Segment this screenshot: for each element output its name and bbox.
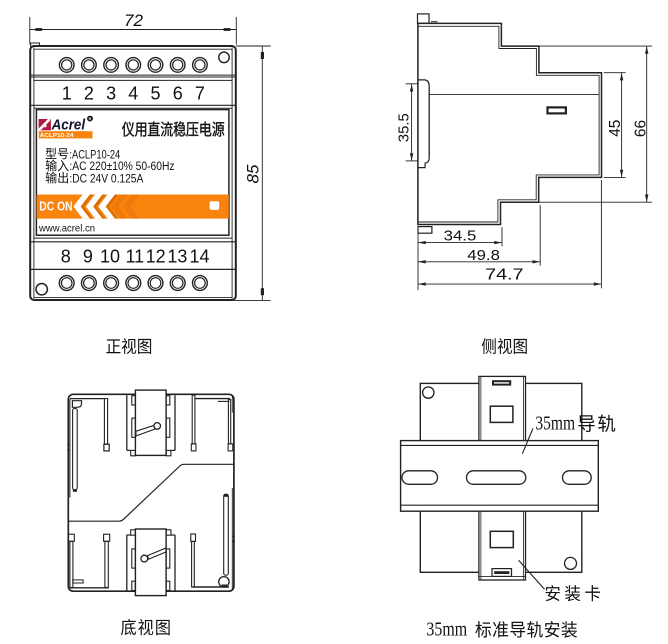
svg-text:R: R xyxy=(88,116,91,121)
svg-text:35mm: 35mm xyxy=(535,413,575,435)
svg-text:11: 11 xyxy=(125,246,144,266)
svg-text:8: 8 xyxy=(61,246,71,266)
svg-text:13: 13 xyxy=(167,246,187,266)
svg-text:www.acrel.cn: www.acrel.cn xyxy=(38,223,95,234)
svg-text:7: 7 xyxy=(195,83,205,103)
svg-text:9: 9 xyxy=(83,246,93,266)
svg-text:72: 72 xyxy=(124,11,143,30)
svg-text:74.7: 74.7 xyxy=(485,266,523,283)
svg-text:35.5: 35.5 xyxy=(395,113,412,142)
svg-text:45: 45 xyxy=(607,120,624,137)
svg-text:DC ON: DC ON xyxy=(39,198,72,213)
svg-text:3: 3 xyxy=(106,83,116,103)
svg-text:2: 2 xyxy=(84,83,94,103)
svg-text:1: 1 xyxy=(62,83,72,103)
svg-text:12: 12 xyxy=(146,246,166,266)
svg-text:85: 85 xyxy=(244,164,263,183)
svg-text:Acrel: Acrel xyxy=(51,116,86,133)
svg-text:35mm: 35mm xyxy=(426,619,467,641)
svg-text:34.5: 34.5 xyxy=(444,227,477,244)
svg-text:5: 5 xyxy=(150,83,160,103)
svg-text:14: 14 xyxy=(189,246,209,266)
svg-text:4: 4 xyxy=(128,83,138,103)
svg-text:10: 10 xyxy=(100,246,120,266)
svg-text:66: 66 xyxy=(632,120,649,137)
svg-text:ACLP10-24: ACLP10-24 xyxy=(40,133,74,139)
svg-text:6: 6 xyxy=(173,83,183,103)
svg-text::DC 24V 0.125A: :DC 24V 0.125A xyxy=(69,171,144,185)
svg-text:49.8: 49.8 xyxy=(467,247,500,264)
